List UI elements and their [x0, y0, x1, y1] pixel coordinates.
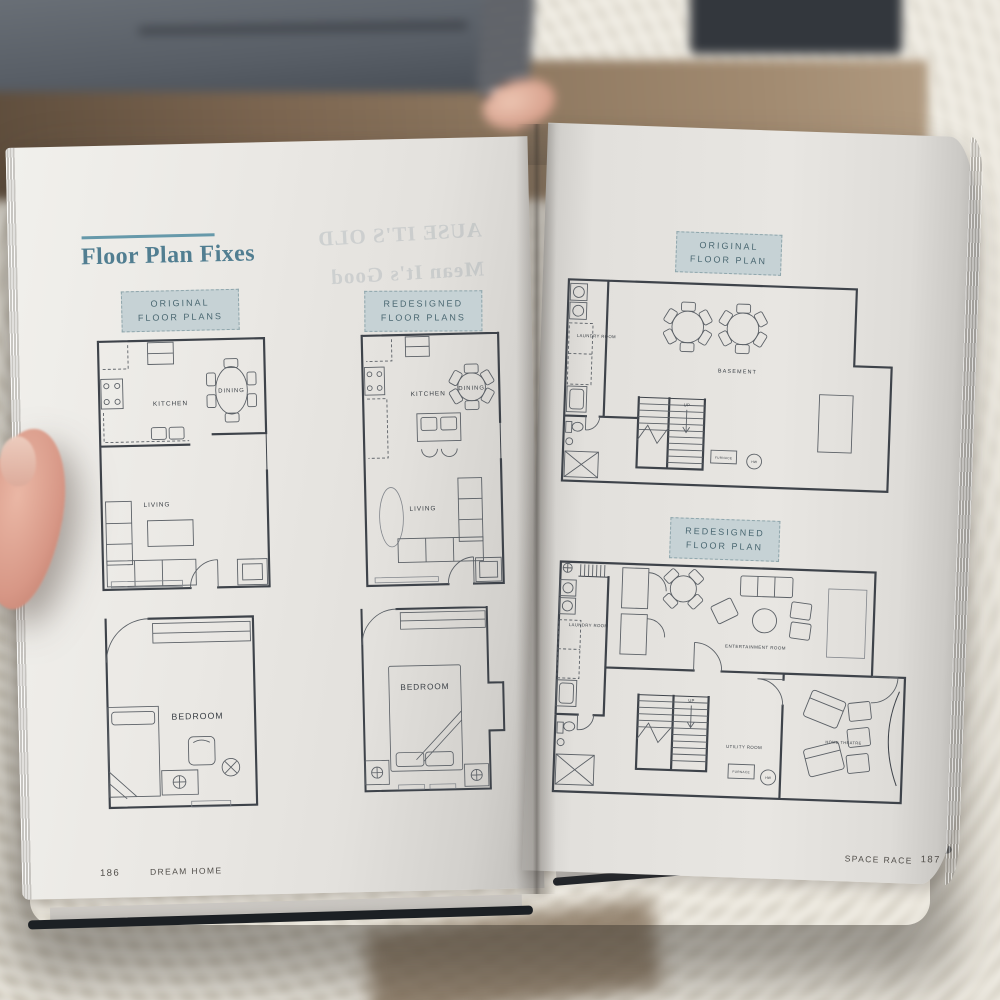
ceiling-fan-symbol — [222, 758, 240, 776]
left-page: AUSE IT'S OLD Mean It's Good Floor Plan … — [6, 136, 545, 900]
photo-open-book-scene: AUSE IT'S OLD Mean It's Good Floor Plan … — [0, 0, 1000, 1000]
bifold-closets — [620, 568, 667, 656]
door-to-theatre — [757, 673, 898, 710]
home-theatre-label: HOME THEATRE — [825, 739, 861, 745]
living-furniture — [105, 500, 196, 588]
up-label: UP — [688, 698, 695, 703]
up-label: UP — [684, 402, 690, 407]
page-number-left: 186 — [100, 868, 120, 879]
section-title-left: DREAM HOME — [150, 865, 223, 877]
closet — [400, 611, 485, 630]
laundry-label: LAUNDRY ROOM — [569, 622, 609, 628]
entry-closet — [237, 559, 267, 585]
theatre-furniture — [800, 688, 899, 786]
dining-table-set — [662, 568, 705, 611]
original-main-floor-plan: KITCHEN DINING LIVING — [88, 332, 280, 598]
door-to-entertainment — [694, 642, 723, 671]
right-page: ORIGINAL FLOOR PLAN — [522, 123, 984, 886]
book-gutter-shadow — [516, 124, 556, 894]
laundry-label: LAUNDRY ROOM — [577, 333, 616, 339]
window — [399, 784, 425, 789]
original-bedroom-plan: BEDROOM — [94, 610, 266, 814]
living-label: LIVING — [143, 501, 170, 509]
living-furniture — [373, 478, 484, 583]
bathroom — [564, 415, 600, 477]
redesigned-bedroom-plan: BEDROOM — [354, 595, 511, 804]
entertainment-label: ENTERTAINMENT ROOM — [725, 644, 786, 651]
living-label: LIVING — [409, 505, 436, 513]
label-redesigned-floor-plans: REDESIGNED FLOOR PLANS — [364, 290, 482, 331]
bedroom-label: BEDROOM — [171, 711, 223, 722]
label-original-floor-plan: ORIGINAL FLOOR PLAN — [675, 231, 782, 275]
redesigned-basement-plan: LAUNDRY ROOM ENTERTAINMENT ROOM UP UTILI… — [545, 553, 919, 812]
gray-couch — [0, 0, 525, 92]
dresser-with-lamp — [162, 770, 199, 795]
water-heater-label: HW — [765, 776, 772, 780]
thumb-nail — [0, 436, 37, 487]
original-basement-plan: LAUNDRY ROOM BASEMENT UP FURNACE HW — [553, 271, 907, 505]
label-original-floor-plans: ORIGINAL FLOOR PLANS — [121, 289, 240, 332]
round-table-set-2 — [717, 303, 768, 354]
kitchen-island — [417, 413, 461, 457]
staircase — [636, 397, 705, 469]
window — [430, 784, 456, 789]
entry-door — [190, 560, 218, 588]
basement-label: BASEMENT — [718, 368, 757, 375]
laundry-appliances — [556, 563, 583, 707]
closet — [153, 621, 251, 643]
armchair — [188, 736, 215, 765]
water-heater-label: HW — [751, 460, 758, 464]
bed — [108, 706, 161, 799]
staircase — [636, 695, 709, 772]
bathroom — [555, 714, 596, 785]
nightstand-right — [464, 764, 488, 787]
laundry-appliances — [566, 283, 594, 412]
dark-furniture — [690, 0, 902, 54]
kitchen-counters — [100, 342, 189, 443]
utility-label: UTILITY ROOM — [726, 744, 762, 750]
open-book: AUSE IT'S OLD Mean It's Good Floor Plan … — [8, 118, 958, 928]
heading-rule — [82, 233, 215, 239]
nightstand-left — [365, 760, 389, 784]
label-redesigned-floor-plan: REDESIGNED FLOOR PLAN — [669, 517, 780, 562]
furnace-label: FURNACE — [732, 770, 750, 775]
redesigned-main-floor-plan: KITCHEN DINING LIVING — [354, 327, 512, 592]
bedroom-label: BEDROOM — [400, 681, 449, 692]
dining-label: DINING — [218, 388, 245, 395]
dining-label: DINING — [458, 385, 485, 392]
kitchen-label: KITCHEN — [411, 390, 446, 398]
hanging-closet — [578, 564, 608, 577]
side-table — [818, 395, 854, 453]
section-title-right: SPACE RACE — [845, 853, 913, 865]
page-number-right: 187 — [921, 854, 941, 866]
kitchen-label: KITCHEN — [153, 400, 188, 408]
round-table-set-1 — [662, 301, 713, 352]
page-title: Floor Plan Fixes — [81, 240, 256, 271]
furnace-label: FURNACE — [715, 456, 732, 461]
